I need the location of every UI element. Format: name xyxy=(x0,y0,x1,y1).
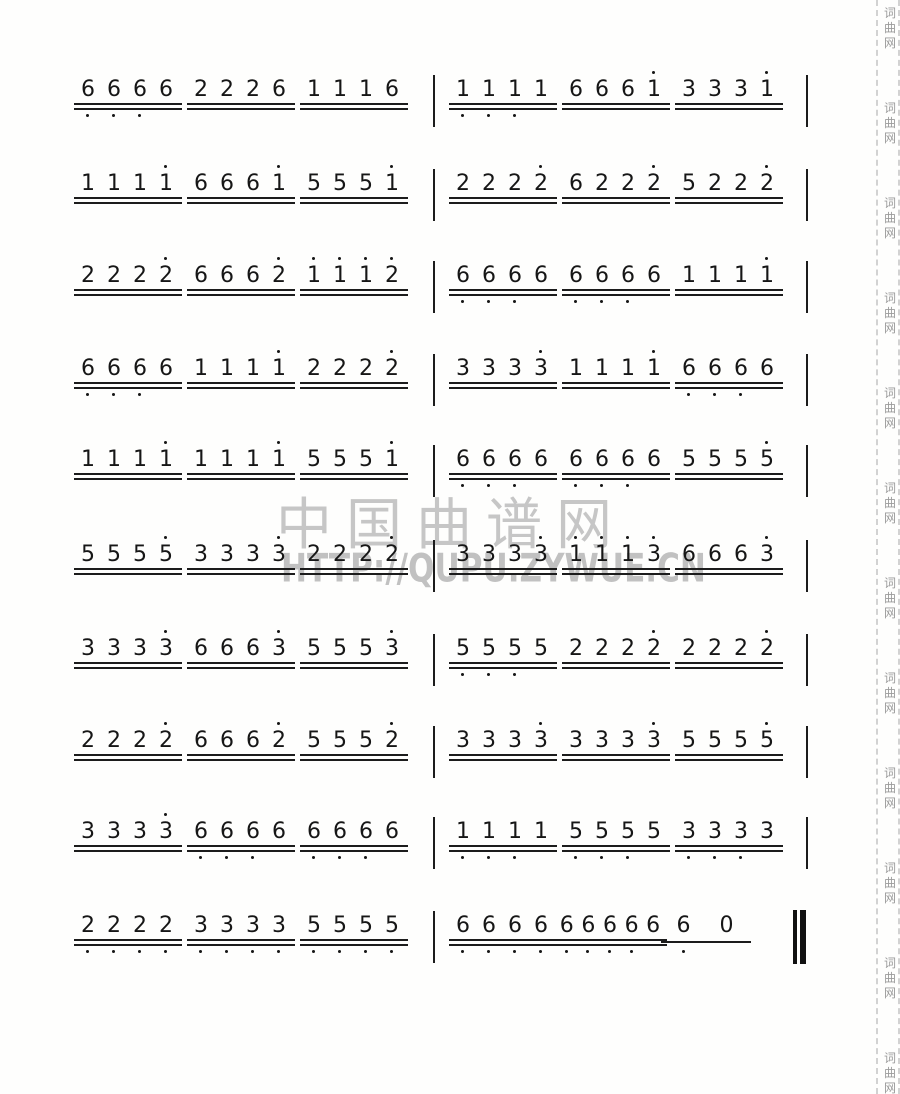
note-digit: 1 xyxy=(127,172,153,195)
beam-line xyxy=(449,573,557,575)
note-digit: 3 xyxy=(476,543,502,566)
note-digit: 1 xyxy=(188,357,214,380)
note-group: 5555 xyxy=(450,637,554,681)
note-digit: 3 xyxy=(676,820,702,843)
note-digit: 5 xyxy=(676,172,702,195)
note-digits: 2222 xyxy=(75,264,179,287)
note-digit: 2 xyxy=(754,637,780,660)
note-digit: 3 xyxy=(101,637,127,660)
note-digit: 6 xyxy=(754,357,780,380)
note-group: 6666 xyxy=(450,914,554,958)
beam-line xyxy=(74,387,182,389)
beam-line xyxy=(675,573,783,575)
note-digit: 5 xyxy=(676,448,702,471)
beam-line xyxy=(300,289,408,291)
note-digit: 3 xyxy=(502,357,528,380)
octave-dot-below xyxy=(739,856,742,859)
note-digit: 2 xyxy=(266,729,292,752)
barline xyxy=(806,354,808,406)
octave-dot-below xyxy=(487,673,490,676)
beam-line xyxy=(300,202,408,204)
note-digit: 6 xyxy=(240,729,266,752)
beam-line xyxy=(300,944,408,946)
note-digits: 66666 xyxy=(556,914,664,937)
beam-line xyxy=(449,103,557,105)
beam-line xyxy=(562,845,670,847)
note-digit: 2 xyxy=(528,172,554,195)
octave-dot-below xyxy=(574,856,577,859)
note-digit: 1 xyxy=(301,78,327,101)
note-digits: 2222 xyxy=(75,914,179,937)
note-digit: 2 xyxy=(214,78,240,101)
note-digits: 6666 xyxy=(188,820,292,843)
note-digit: 1 xyxy=(563,543,589,566)
note-digit: 3 xyxy=(127,820,153,843)
octave-dot-above xyxy=(539,722,542,725)
note-digit: 2 xyxy=(266,264,292,287)
score-row: 222266621112666666661111 xyxy=(0,264,900,312)
note-digit: 1 xyxy=(676,264,702,287)
note-digit: 3 xyxy=(702,78,728,101)
beam-line xyxy=(300,845,408,847)
note-digits: 3333 xyxy=(563,729,667,752)
note-digits: 2222 xyxy=(75,729,179,752)
note-digit: 6 xyxy=(556,914,578,937)
beam-line xyxy=(675,108,783,110)
barline xyxy=(806,634,808,686)
note-digit: 6 xyxy=(214,820,240,843)
octave-dot-above xyxy=(765,257,768,260)
octave-dot-below xyxy=(86,114,89,117)
note-digit: 5 xyxy=(327,448,353,471)
note-group: 5551 xyxy=(301,448,405,492)
note-digit: 6 xyxy=(188,729,214,752)
note-digits: 1111 xyxy=(188,448,292,471)
beam-line xyxy=(300,939,408,941)
note-digit: 2 xyxy=(615,637,641,660)
beam-line xyxy=(187,667,295,669)
octave-dot-below xyxy=(600,856,603,859)
note-group: 66666 xyxy=(556,914,664,958)
note-digit: 2 xyxy=(153,264,179,287)
octave-dot-below xyxy=(312,856,315,859)
note-digit: 6 xyxy=(502,914,528,937)
note-digit: 2 xyxy=(641,172,667,195)
octave-dot-below xyxy=(687,856,690,859)
note-digit: 2 xyxy=(563,637,589,660)
octave-dot-above xyxy=(539,350,542,353)
barline xyxy=(806,817,808,869)
note-digit: 6 xyxy=(240,264,266,287)
note-group: 5555 xyxy=(301,914,405,958)
octave-dot-above xyxy=(626,536,629,539)
note-group: 6666 xyxy=(563,264,667,308)
note-digit: 6 xyxy=(702,357,728,380)
note-digit: 5 xyxy=(728,448,754,471)
note-digit: 3 xyxy=(476,357,502,380)
note-digit: 6 xyxy=(301,820,327,843)
note-group: 1111 xyxy=(75,448,179,492)
beam-line xyxy=(449,944,557,946)
note-group: 1112 xyxy=(301,264,405,308)
note-group: 2222 xyxy=(301,357,405,401)
beam-line xyxy=(74,294,182,296)
beam-line xyxy=(675,382,783,384)
note-digit: 5 xyxy=(353,637,379,660)
final-barline-thin xyxy=(793,910,797,964)
note-digit: 2 xyxy=(379,543,405,566)
note-digit: 6 xyxy=(188,172,214,195)
beam-line xyxy=(187,573,295,575)
note-digit: 1 xyxy=(589,357,615,380)
octave-dot-below xyxy=(338,950,341,953)
note-digit: 1 xyxy=(379,448,405,471)
note-digit: 2 xyxy=(153,729,179,752)
octave-dot-above xyxy=(390,722,393,725)
beam-line xyxy=(449,850,557,852)
note-digit: 1 xyxy=(476,78,502,101)
octave-dot-above xyxy=(277,257,280,260)
note-digit: 6 xyxy=(528,914,554,937)
beam-line xyxy=(449,382,557,384)
octave-dot-above xyxy=(765,71,768,74)
barline xyxy=(806,726,808,778)
note-digit: 6 xyxy=(214,264,240,287)
note-digit: 1 xyxy=(450,820,476,843)
note-digit: 6 xyxy=(615,78,641,101)
octave-dot-below xyxy=(574,484,577,487)
beam-line xyxy=(562,473,670,475)
beam-line xyxy=(449,759,557,761)
score-row: 333366666666111155553333 xyxy=(0,820,900,868)
score-row: 666611112222333311116666 xyxy=(0,357,900,405)
beam-line xyxy=(187,662,295,664)
note-digit: 3 xyxy=(266,543,292,566)
octave-dot-below xyxy=(461,856,464,859)
note-digit: 6 xyxy=(476,264,502,287)
note-digit: 3 xyxy=(589,729,615,752)
beam-line xyxy=(74,573,182,575)
note-digits: 5555 xyxy=(676,448,780,471)
beam-line xyxy=(449,387,557,389)
octave-dot-above xyxy=(164,813,167,816)
beam-line xyxy=(675,473,783,475)
octave-dot-above xyxy=(164,257,167,260)
beam-line xyxy=(675,289,783,291)
beam-line xyxy=(74,382,182,384)
note-group: 6666 xyxy=(450,264,554,308)
octave-dot-below xyxy=(574,300,577,303)
beam-line xyxy=(562,478,670,480)
note-group: 3333 xyxy=(75,637,179,681)
note-digit: 6 xyxy=(214,637,240,660)
note-digit: 3 xyxy=(728,78,754,101)
octave-dot-below xyxy=(739,393,742,396)
note-digit: 5 xyxy=(327,914,353,937)
octave-dot-above xyxy=(312,257,315,260)
note-group: 2222 xyxy=(563,637,667,681)
note-digit: 6 xyxy=(599,914,621,937)
barline xyxy=(433,169,435,221)
note-digit: 1 xyxy=(353,264,379,287)
note-group: 3333 xyxy=(188,543,292,587)
beam-line xyxy=(675,478,783,480)
beam-line xyxy=(187,387,295,389)
beam-line xyxy=(187,944,295,946)
beam-line xyxy=(562,667,670,669)
note-digits: 3333 xyxy=(75,637,179,660)
note-digits: 6661 xyxy=(188,172,292,195)
beam-line xyxy=(74,289,182,291)
note-digit: 3 xyxy=(615,729,641,752)
octave-dot-below xyxy=(600,300,603,303)
octave-dot-above xyxy=(600,536,603,539)
note-digit: 6 xyxy=(450,448,476,471)
note-digits: 2222 xyxy=(676,637,780,660)
note-digit: 2 xyxy=(327,543,353,566)
beam-line xyxy=(675,387,783,389)
note-digits: 5551 xyxy=(301,448,405,471)
beam-line xyxy=(675,759,783,761)
beam-line xyxy=(562,382,670,384)
beam-line xyxy=(300,759,408,761)
note-digit: 3 xyxy=(528,729,554,752)
note-digit: 1 xyxy=(563,357,589,380)
octave-dot-below xyxy=(682,950,685,953)
note-group: 3333 xyxy=(188,914,292,958)
note-digit: 5 xyxy=(754,729,780,752)
note-digits: 6222 xyxy=(563,172,667,195)
note-digit: 6 xyxy=(240,820,266,843)
note-group: 5555 xyxy=(676,448,780,492)
note-digit: 6 xyxy=(502,264,528,287)
beam-line xyxy=(661,941,751,943)
final-barline xyxy=(793,910,808,964)
beam-line xyxy=(449,473,557,475)
note-group: 2222 xyxy=(450,172,554,216)
barline xyxy=(433,354,435,406)
beam-line xyxy=(187,845,295,847)
note-group: 3333 xyxy=(75,820,179,864)
note-digit: 6 xyxy=(641,448,667,471)
note-digit: 3 xyxy=(188,914,214,937)
score-row: 111166615551222262225222 xyxy=(0,172,900,220)
note-digit: 6 xyxy=(641,264,667,287)
octave-dot-below xyxy=(364,856,367,859)
note-digit: 2 xyxy=(379,264,405,287)
score: 6666222611161111666133311111666155512222… xyxy=(0,0,900,1094)
note-digit: 6 xyxy=(75,78,101,101)
note-digit: 6 xyxy=(589,264,615,287)
octave-dot-above xyxy=(652,165,655,168)
note-digit: 6 xyxy=(676,543,702,566)
note-digit: 5 xyxy=(702,729,728,752)
note-group: 2222 xyxy=(75,729,179,773)
octave-dot-below xyxy=(461,114,464,117)
note-digit: 1 xyxy=(153,448,179,471)
note-digit: 1 xyxy=(327,264,353,287)
beam-line xyxy=(187,108,295,110)
note-digit: 1 xyxy=(75,448,101,471)
note-digit: 1 xyxy=(266,172,292,195)
note-group: 6661 xyxy=(188,172,292,216)
note-digit: 2 xyxy=(728,637,754,660)
note-digit: 6 xyxy=(621,914,643,937)
note-digit: 1 xyxy=(240,357,266,380)
note-digit: 5 xyxy=(528,637,554,660)
note-group: 6666 xyxy=(450,448,554,492)
octave-dot-above xyxy=(338,257,341,260)
note-digits: 6661 xyxy=(563,78,667,101)
octave-dot-above xyxy=(277,350,280,353)
note-digit: 3 xyxy=(75,637,101,660)
note-digits: 2222 xyxy=(450,172,554,195)
note-digits: 5555 xyxy=(75,543,179,566)
octave-dot-below xyxy=(713,856,716,859)
note-digit: 3 xyxy=(502,729,528,752)
note-digits: 5553 xyxy=(301,637,405,660)
note-digit: 2 xyxy=(450,172,476,195)
octave-dot-above xyxy=(277,441,280,444)
note-group: 2222 xyxy=(75,914,179,958)
note-digit: 3 xyxy=(641,543,667,566)
beam-line xyxy=(74,754,182,756)
barline xyxy=(433,445,435,497)
beam-line xyxy=(300,387,408,389)
note-digits: 3333 xyxy=(188,914,292,937)
note-digits: 1112 xyxy=(301,264,405,287)
note-digit: 3 xyxy=(641,729,667,752)
note-digit: 1 xyxy=(754,264,780,287)
note-digits: 2222 xyxy=(301,543,405,566)
note-digits: 6666 xyxy=(450,914,554,937)
note-digit: 6 xyxy=(214,172,240,195)
octave-dot-above xyxy=(390,350,393,353)
beam-line xyxy=(300,850,408,852)
note-digit: 2 xyxy=(240,78,266,101)
note-digits: 6666 xyxy=(75,357,179,380)
note-digits: 6666 xyxy=(563,264,667,287)
beam-line xyxy=(74,662,182,664)
beam-line xyxy=(562,108,670,110)
note-digits: 6666 xyxy=(450,448,554,471)
beam-line xyxy=(449,662,557,664)
note-group: 6666 xyxy=(188,820,292,864)
octave-dot-above xyxy=(765,165,768,168)
beam-line xyxy=(300,473,408,475)
note-digit: 2 xyxy=(589,172,615,195)
note-digit: 3 xyxy=(702,820,728,843)
note-digits: 2226 xyxy=(188,78,292,101)
note-group: 5555 xyxy=(563,820,667,864)
note-digit: 3 xyxy=(502,543,528,566)
note-digits: 3333 xyxy=(188,543,292,566)
octave-dot-above xyxy=(164,630,167,633)
note-digit: 6 xyxy=(214,729,240,752)
note-digit: 6 xyxy=(642,914,664,937)
note-digits: 60 xyxy=(662,914,748,937)
beam-line xyxy=(562,294,670,296)
note-group: 2222 xyxy=(301,543,405,587)
note-digit: 3 xyxy=(528,357,554,380)
note-digit: 1 xyxy=(327,78,353,101)
note-digit: 6 xyxy=(101,357,127,380)
note-digit: 6 xyxy=(563,172,589,195)
note-digits: 6663 xyxy=(188,637,292,660)
note-digits: 3333 xyxy=(75,820,179,843)
barline xyxy=(433,634,435,686)
note-digit: 2 xyxy=(353,357,379,380)
octave-dot-below xyxy=(461,300,464,303)
note-digit: 2 xyxy=(188,78,214,101)
note-digit: 5 xyxy=(327,729,353,752)
note-digit: 6 xyxy=(563,78,589,101)
octave-dot-above xyxy=(765,536,768,539)
octave-dot-above xyxy=(539,165,542,168)
note-group: 3333 xyxy=(450,357,554,401)
note-digit: 6 xyxy=(578,914,600,937)
note-digit: 1 xyxy=(528,820,554,843)
note-digit: 2 xyxy=(641,637,667,660)
octave-dot-above xyxy=(652,536,655,539)
note-digit: 5 xyxy=(754,448,780,471)
note-digit: 6 xyxy=(589,448,615,471)
note-digit: 2 xyxy=(301,543,327,566)
octave-dot-above xyxy=(390,441,393,444)
octave-dot-below xyxy=(112,393,115,396)
note-digit: 3 xyxy=(240,543,266,566)
note-digit: 5 xyxy=(353,729,379,752)
octave-dot-above xyxy=(574,536,577,539)
beam-line xyxy=(187,850,295,852)
note-group: 3333 xyxy=(450,543,554,587)
note-group: 2226 xyxy=(188,78,292,122)
note-digits: 6666 xyxy=(563,448,667,471)
note-group: 6666 xyxy=(75,78,179,122)
note-digit: 6 xyxy=(676,357,702,380)
note-digit: 2 xyxy=(75,914,101,937)
note-digit: 3 xyxy=(75,820,101,843)
octave-dot-above xyxy=(652,71,655,74)
note-digits: 6662 xyxy=(188,729,292,752)
beam-line xyxy=(449,108,557,110)
note-group: 6222 xyxy=(563,172,667,216)
note-digit: 5 xyxy=(301,637,327,660)
beam-line xyxy=(300,573,408,575)
note-group: 5222 xyxy=(676,172,780,216)
barline xyxy=(433,75,435,127)
note-group: 2222 xyxy=(676,637,780,681)
note-digit: 5 xyxy=(127,543,153,566)
note-digit: 1 xyxy=(127,448,153,471)
note-digit: 6 xyxy=(353,820,379,843)
note-digit: 2 xyxy=(353,543,379,566)
octave-dot-below xyxy=(364,950,367,953)
octave-dot-above xyxy=(390,630,393,633)
note-digit: 6 xyxy=(615,264,641,287)
score-row: 333366635553555522222222 xyxy=(0,637,900,685)
note-digit: 5 xyxy=(301,448,327,471)
beam-line xyxy=(74,667,182,669)
beam-line xyxy=(74,108,182,110)
note-digit: 3 xyxy=(728,820,754,843)
octave-dot-below xyxy=(138,393,141,396)
octave-dot-below xyxy=(199,856,202,859)
beam-line xyxy=(449,289,557,291)
note-group: 5555 xyxy=(676,729,780,773)
beam-line xyxy=(449,667,557,669)
barline xyxy=(433,540,435,592)
